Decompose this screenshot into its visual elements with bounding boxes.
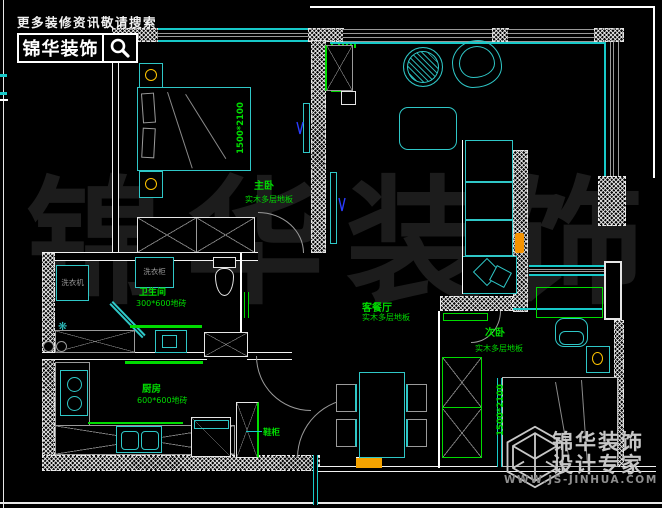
second-wardrobe-cell-1	[443, 358, 481, 408]
master-room-label: 主卧	[254, 177, 274, 192]
search-icon	[104, 37, 136, 59]
frame-tick-3	[0, 99, 8, 101]
wall-right-corner	[598, 176, 626, 226]
bath-room-label: 卫生间	[139, 285, 166, 298]
duct-shaft	[204, 332, 248, 357]
wall-outer-left	[42, 253, 55, 471]
lounge-chair	[452, 40, 502, 88]
wall-outer-bottom	[42, 455, 320, 471]
living-tv-icon	[338, 196, 346, 214]
basin-1	[43, 341, 54, 352]
living-storage-cabinet	[325, 45, 353, 91]
wall-second-left	[438, 311, 440, 468]
floorplan-canvas: 锦华装饰 1500*2100 主卧 实木多层地	[0, 0, 662, 508]
wardrobe-cell-1	[138, 218, 197, 252]
header-brand: 锦华装饰	[19, 35, 102, 61]
wall-master-left	[112, 40, 119, 253]
master-pillow-2	[141, 128, 156, 159]
second-chair	[555, 318, 588, 347]
living-floor-label: 实木多层地板	[362, 312, 410, 323]
burner-1	[67, 377, 82, 392]
wall-bath-kitchen-divider	[42, 352, 207, 360]
bath-vanity-counter	[55, 330, 135, 353]
dining-chair-4	[406, 419, 427, 447]
second-lamp-icon	[592, 352, 603, 365]
sofa-outer-line	[462, 140, 463, 294]
washing-machine-label: 洗衣机	[61, 279, 84, 287]
bath-door-frame	[244, 292, 249, 318]
toilet-tank	[213, 257, 236, 268]
wall-top-right-b	[594, 28, 624, 42]
master-tv-icon	[296, 120, 304, 136]
master-window	[158, 28, 310, 42]
shoe-cabinet-leader-line	[246, 431, 262, 432]
dining-chair-3	[406, 384, 427, 412]
entry-threshold	[356, 457, 382, 468]
shoe-cabinet-label: 鞋柜	[263, 426, 280, 438]
second-wardrobe-cell-2	[443, 409, 481, 457]
sofa-seat-1	[465, 182, 513, 220]
frame-tick-2	[0, 92, 7, 95]
wardrobe-cell-2	[197, 218, 255, 252]
kitchen-counter-edge-top	[125, 361, 203, 364]
header-slogan: 更多装修资讯敬请搜索	[17, 12, 157, 31]
sofa-chaise	[465, 140, 513, 182]
kitchen-counter-edge-bottom	[88, 422, 183, 424]
second-chair-seat	[559, 331, 584, 345]
living-tv	[330, 172, 337, 244]
balcony-outer-right-line	[653, 6, 655, 178]
entry-door-leaf	[604, 261, 622, 320]
sofa-seat-2	[465, 220, 513, 256]
sink-basin-1	[121, 431, 139, 450]
lounge-chair-inner	[459, 46, 495, 78]
master-lamp-2-icon	[145, 178, 157, 190]
master-pillow-1	[141, 93, 156, 124]
dining-chair-2	[336, 419, 357, 447]
shower-basin-inner	[162, 335, 177, 348]
master-tv	[303, 103, 310, 153]
header-brand-box: 锦华装饰	[17, 33, 138, 63]
kitchen-room-label: 厨房	[142, 381, 161, 395]
stove	[60, 370, 88, 416]
second-desk	[536, 287, 603, 318]
footer-website: WWW.JS-JINHUA.COM	[504, 474, 658, 486]
kitchen-tile-label: 600*600地砖	[137, 395, 188, 406]
second-shelf	[443, 313, 488, 321]
coffee-table	[399, 107, 457, 150]
wall-switch-orange	[515, 233, 524, 253]
laundry-cabinet: 洗衣柜	[135, 257, 174, 288]
threshold-guide-line	[313, 455, 318, 505]
fridge	[191, 417, 231, 457]
frame-tick-1	[0, 74, 7, 77]
burner-2	[67, 396, 82, 411]
dining-chair-1	[336, 384, 357, 412]
washing-machine: 洗衣机	[56, 265, 89, 301]
fridge-top	[194, 420, 229, 429]
basin-2	[56, 341, 67, 352]
wall-living-second-divider	[440, 296, 513, 311]
shoe-cabinet	[236, 402, 259, 458]
kitchen-sink	[116, 426, 162, 453]
wall-master-living-divider	[311, 40, 326, 253]
sink-basin-2	[141, 431, 159, 450]
master-wardrobe	[137, 217, 255, 253]
second-room-label: 次卧	[485, 324, 505, 339]
master-bed-dimension: 1500*2100	[236, 98, 248, 158]
bath-tile-label: 300*600地砖	[136, 298, 187, 309]
bath-counter-edge	[130, 325, 202, 328]
master-floor-label: 实木多层地板	[245, 194, 293, 205]
frame-bottom-line	[0, 502, 662, 504]
master-lamp-1-icon	[145, 69, 157, 81]
kitchen-door-arc	[256, 356, 311, 411]
wall-top-right-a	[492, 28, 509, 42]
second-wardrobe	[442, 357, 482, 458]
right-bay-window	[604, 42, 619, 176]
living-storage-box	[341, 91, 356, 105]
living-window-2	[508, 29, 595, 42]
balcony-outer-top-line	[310, 6, 655, 8]
entry-sidelight-window	[529, 265, 605, 276]
round-armchair	[403, 47, 443, 87]
laundry-cabinet-label: 洗衣柜	[143, 268, 166, 276]
dining-table	[359, 372, 405, 458]
second-floor-label: 实木多层地板	[475, 343, 523, 354]
